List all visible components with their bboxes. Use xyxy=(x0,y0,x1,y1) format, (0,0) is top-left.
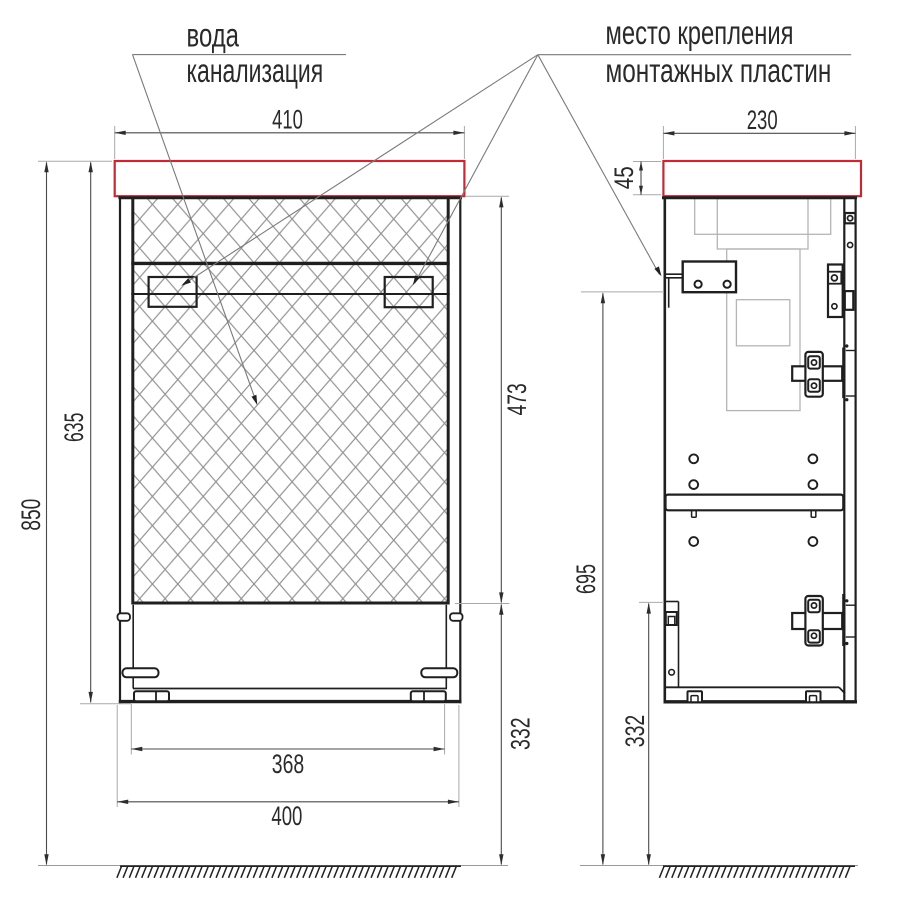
svg-text:410: 410 xyxy=(272,105,303,135)
svg-text:монтажных пластин: монтажных пластин xyxy=(606,52,832,89)
svg-text:695: 695 xyxy=(571,564,601,594)
svg-text:332: 332 xyxy=(620,715,650,748)
svg-text:368: 368 xyxy=(272,749,304,779)
svg-text:850: 850 xyxy=(16,499,46,531)
svg-text:635: 635 xyxy=(59,413,89,442)
svg-text:вода: вода xyxy=(187,17,240,54)
svg-text:канализация: канализация xyxy=(187,52,324,89)
svg-text:45: 45 xyxy=(609,166,639,189)
svg-text:230: 230 xyxy=(747,105,778,135)
svg-text:400: 400 xyxy=(271,801,302,831)
svg-text:332: 332 xyxy=(506,717,536,750)
svg-text:место крепления: место крепления xyxy=(606,14,794,51)
svg-text:473: 473 xyxy=(502,383,532,415)
